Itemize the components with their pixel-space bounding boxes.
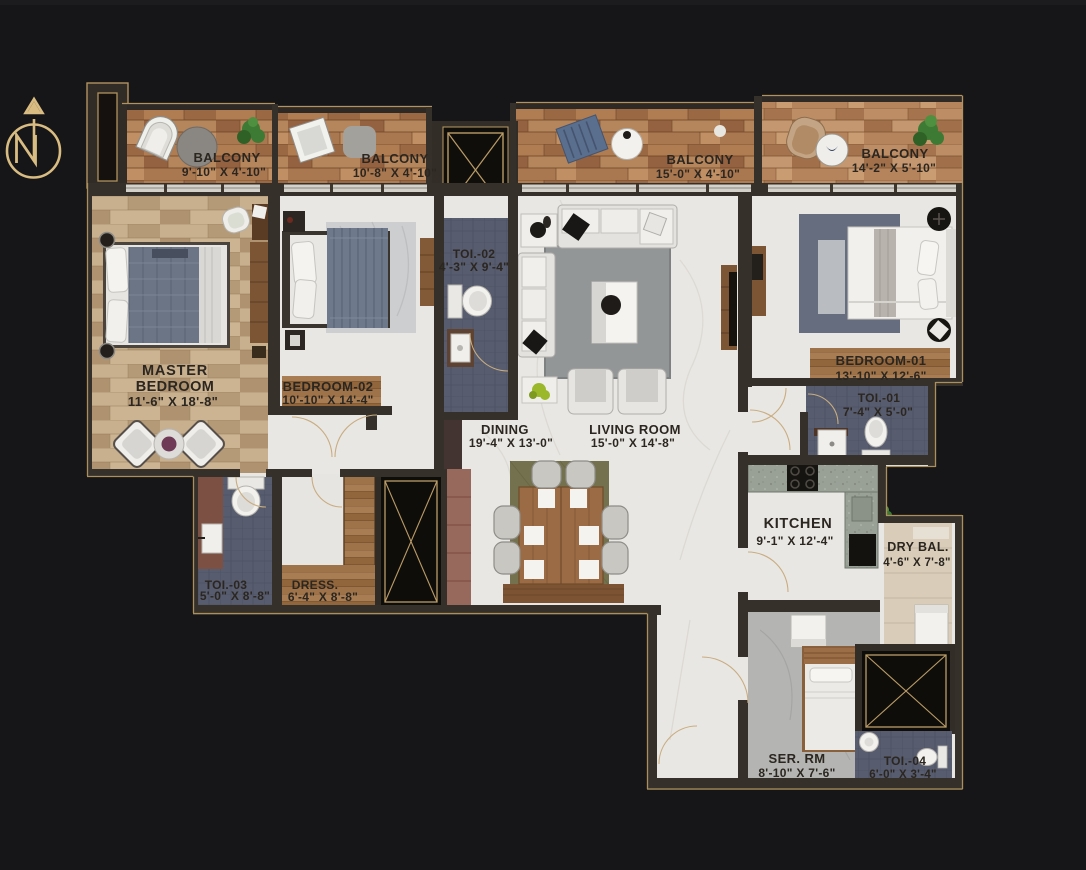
svg-text:4'-6" X 7'-8": 4'-6" X 7'-8" <box>883 557 951 569</box>
svg-text:8'-10" X 7'-6": 8'-10" X 7'-6" <box>758 766 835 780</box>
svg-text:10'-10" X 14'-4": 10'-10" X 14'-4" <box>282 393 373 407</box>
svg-text:TOI.-04: TOI.-04 <box>884 754 927 768</box>
svg-text:7'-4" X 5'-0": 7'-4" X 5'-0" <box>843 405 913 419</box>
svg-text:TOI.-02: TOI.-02 <box>453 247 496 261</box>
svg-text:DINING: DINING <box>481 422 529 437</box>
svg-text:KITCHEN: KITCHEN <box>764 516 833 532</box>
svg-text:BEDROOM-02: BEDROOM-02 <box>283 379 374 394</box>
svg-text:BEDROOM-01: BEDROOM-01 <box>836 353 927 368</box>
svg-text:9'-10" X 4'-10": 9'-10" X 4'-10" <box>182 165 266 179</box>
svg-text:BALCONY: BALCONY <box>666 152 733 167</box>
svg-text:SER. RM: SER. RM <box>769 751 826 766</box>
svg-text:BALCONY: BALCONY <box>193 150 260 165</box>
svg-text:4'-3" X 9'-4": 4'-3" X 9'-4" <box>439 260 509 274</box>
svg-text:BALCONY: BALCONY <box>361 151 428 166</box>
svg-text:6'-0" X 3'-4": 6'-0" X 3'-4" <box>869 769 937 781</box>
svg-text:TOI.-01: TOI.-01 <box>858 391 901 405</box>
svg-text:6'-4" X 8'-8": 6'-4" X 8'-8" <box>288 590 358 604</box>
svg-text:9'-1" X 12'-4": 9'-1" X 12'-4" <box>756 534 833 548</box>
svg-text:15'-0" X 4'-10": 15'-0" X 4'-10" <box>656 167 740 181</box>
svg-text:19'-4" X 13'-0": 19'-4" X 13'-0" <box>469 436 553 450</box>
svg-text:DRY BAL.: DRY BAL. <box>887 540 949 554</box>
svg-text:10'-8" X 4'-10": 10'-8" X 4'-10" <box>353 166 437 180</box>
svg-text:5'-0" X 8'-8": 5'-0" X 8'-8" <box>200 589 270 603</box>
svg-text:11'-6" X 18'-8": 11'-6" X 18'-8" <box>128 394 218 409</box>
svg-text:14'-2" X 5'-10": 14'-2" X 5'-10" <box>852 161 936 175</box>
svg-text:LIVING ROOM: LIVING ROOM <box>589 422 681 437</box>
svg-text:MASTER: MASTER <box>142 363 208 379</box>
svg-text:15'-0" X 14'-8": 15'-0" X 14'-8" <box>591 436 675 450</box>
svg-text:BALCONY: BALCONY <box>861 146 928 161</box>
svg-text:13'-10" X 12'-6": 13'-10" X 12'-6" <box>835 369 926 383</box>
svg-text:BEDROOM: BEDROOM <box>136 379 215 395</box>
